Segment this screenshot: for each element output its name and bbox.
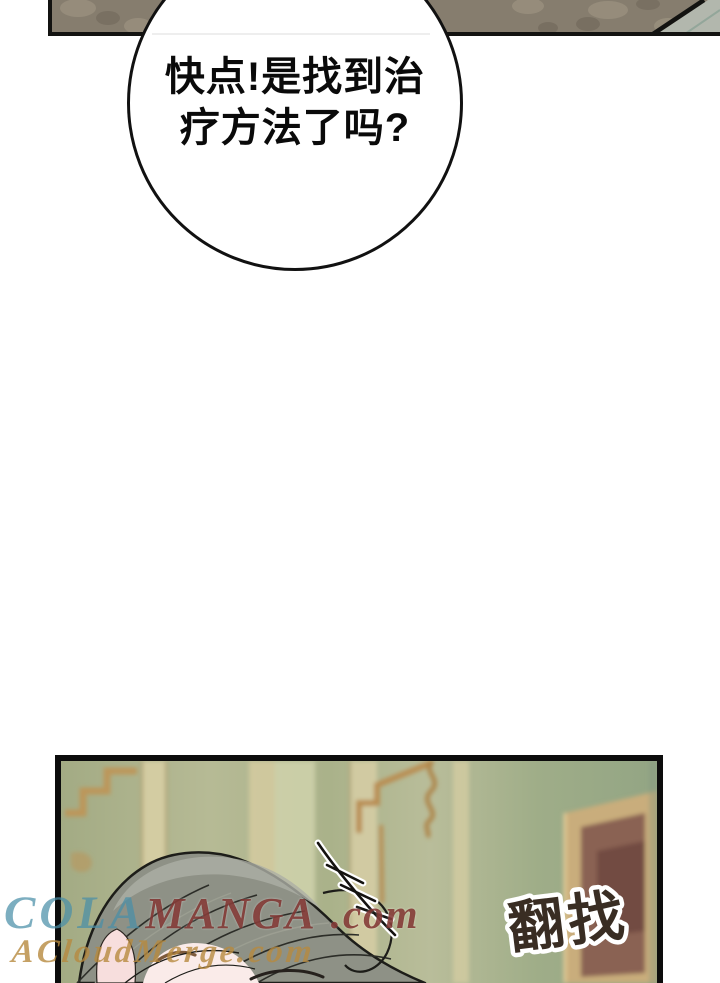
speech-line-1: 快点!是找到治 — [130, 52, 460, 103]
strip-left-border — [48, 0, 52, 36]
speech-bubble-text: 快点!是找到治 疗方法了吗? — [130, 52, 460, 154]
pilaster — [453, 761, 469, 983]
gold-molding-vertical — [381, 825, 382, 903]
panel-edge-artifact — [152, 33, 430, 35]
speech-line-2: 疗方法了吗? — [130, 103, 460, 154]
speech-bubble: 快点!是找到治 疗方法了吗? — [127, 0, 463, 271]
comic-page: 快点!是找到治 疗方法了吗? — [0, 0, 720, 983]
panel-artwork: 翻找 — [61, 761, 657, 983]
bottom-comic-panel: 翻找 — [55, 755, 663, 983]
wall-right-shade — [649, 761, 657, 983]
